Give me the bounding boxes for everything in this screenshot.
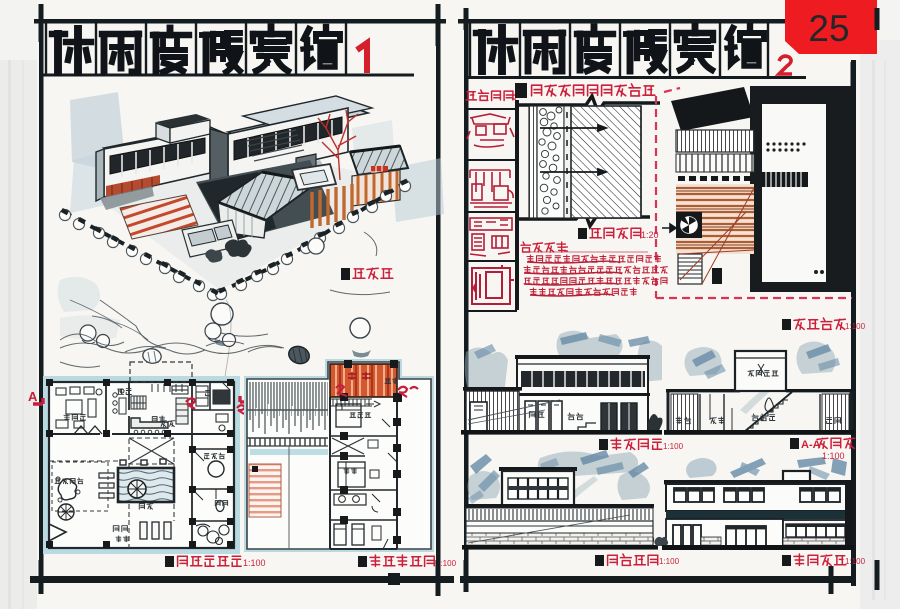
svg-text:1:20: 1:20 <box>641 230 659 240</box>
svg-text:1:100: 1:100 <box>822 451 845 461</box>
svg-text:1:100: 1:100 <box>659 557 680 566</box>
svg-text:1:100: 1:100 <box>845 322 866 331</box>
svg-text:1:100: 1:100 <box>845 557 866 566</box>
svg-text:A: A <box>28 389 38 404</box>
svg-text:A-A: A-A <box>801 439 821 451</box>
svg-text:1:100: 1:100 <box>663 442 684 451</box>
svg-text:1:100: 1:100 <box>243 558 266 568</box>
svg-text:25: 25 <box>808 8 849 49</box>
